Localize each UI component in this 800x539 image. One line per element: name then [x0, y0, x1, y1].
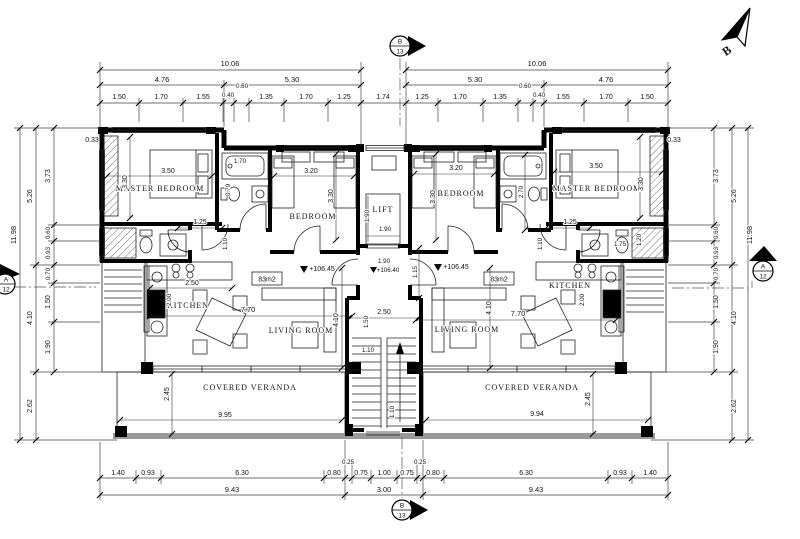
dim-top-l0: 1.50 — [112, 94, 126, 101]
room-veranda-left: COVERED VERANDA — [203, 383, 297, 392]
room-living-right: LIVING ROOM — [435, 325, 500, 334]
dim-top-r0: 1.25 — [415, 94, 429, 101]
dim-left-d5: 1.90 — [45, 340, 52, 354]
section-bottom-number: 13 — [398, 513, 406, 520]
labels-left-apartment: 0.33 MASTER BEDROOM 3.50 3.30 1.25 BEDRO… — [85, 137, 340, 419]
floor-plan-drawing: B 13 B 13 A 12 A 12 B 10.06 10.06 — [0, 0, 800, 539]
dim-bot-8: 0.25 — [414, 459, 427, 466]
dim-bot-0: 1.40 — [111, 470, 125, 477]
dim-top-sub-2: 5.30 — [468, 75, 483, 84]
veranda-right — [423, 372, 651, 436]
dim-tub-left: 1.70 — [234, 158, 247, 165]
section-marker-left: A 12 — [0, 264, 20, 294]
side-terrace-left — [102, 262, 145, 372]
dim-top-sub-3: 4.76 — [599, 75, 614, 84]
dim-top-l7: 1.25 — [337, 94, 351, 101]
dim-master-left-door: 1.25 — [193, 219, 207, 226]
dim-top-l1: 1.70 — [154, 94, 168, 101]
dim-top-r7: 1.50 — [640, 94, 654, 101]
dim-top-total-right: 10.06 — [528, 59, 547, 68]
dim-right-d1: 0.60 — [713, 226, 720, 239]
dim-top-total-left: 10.06 — [221, 59, 240, 68]
dim-top-l2: 1.55 — [196, 94, 210, 101]
dim-bedroom-left-d: 3.30 — [328, 189, 335, 203]
dim-living-right-w: 7.70 — [511, 309, 526, 318]
level-left: +106.45 — [309, 266, 335, 273]
dim-bot-5: 0.75 — [354, 470, 368, 477]
dim-left-mid-1: 4.10 — [27, 311, 34, 325]
room-living-left: LIVING ROOM — [269, 326, 334, 335]
section-bottom-letter: B — [400, 503, 404, 510]
dim-bot-4: 0.25 — [342, 459, 355, 466]
dim-left-d1: 0.60 — [45, 226, 52, 239]
dim-ensuite-right-w: 1.75 — [614, 241, 627, 248]
veranda-left — [117, 372, 345, 436]
dim-bot-total-1: 3.00 — [377, 485, 392, 494]
dim-left-d0: 3.73 — [45, 169, 52, 183]
dim-wc-left: 0.70 — [225, 183, 232, 196]
dim-bot-total-2: 9.43 — [529, 485, 544, 494]
dim-veranda-right-d: 2.45 — [585, 392, 592, 406]
dim-master-left-d: 3.30 — [122, 175, 129, 189]
dim-kitchen-left-d: 2.00 — [166, 293, 173, 306]
dim-top-r1: 1.70 — [453, 94, 467, 101]
section-top-letter: B — [398, 39, 402, 46]
lift-shaft — [366, 156, 400, 248]
dim-right-d2: 0.93 — [713, 246, 720, 259]
dim-top-r2: 1.35 — [493, 94, 507, 101]
dim-right-d5: 1.90 — [713, 340, 720, 354]
dim-living-right-d: 4.10 — [486, 301, 493, 315]
dim-veranda-left-w: 9.95 — [218, 412, 232, 419]
section-left-letter: A — [4, 277, 9, 284]
dim-top-r6: 1.70 — [599, 94, 613, 101]
dim-kitchen-left-w: 2.50 — [185, 280, 199, 287]
dim-master-right-door: 1.25 — [563, 219, 577, 226]
dim-bedroom-left-w: 3.20 — [304, 168, 318, 175]
dim-bot-2: 6.30 — [235, 470, 249, 477]
dim-stair-w: 2.50 — [377, 309, 391, 316]
dim-bot-11: 0.93 — [613, 470, 627, 477]
section-right-number: 12 — [759, 274, 767, 281]
side-terrace-right — [623, 262, 666, 372]
dim-hall-left: 1.10 — [222, 237, 229, 250]
veranda-edge-band — [113, 433, 655, 439]
dim-living-left-d: 4.10 — [333, 313, 340, 327]
dim-hall-right: 1.10 — [537, 237, 544, 250]
dim-top-center: 1.74 — [376, 94, 390, 101]
dim-lift-d: 1.90 — [364, 209, 371, 222]
room-bedroom-left: BEDROOM — [289, 212, 336, 221]
dim-corner-right: 0.33 — [667, 137, 681, 144]
dim-top-l5: 1.35 — [259, 94, 273, 101]
dim-top-r5: 1.55 — [556, 94, 570, 101]
section-right-letter: A — [761, 264, 766, 271]
room-veranda-right: COVERED VERANDA — [485, 383, 579, 392]
dim-ensuite-right-d: 1.20 — [636, 233, 643, 246]
dim-right-d3: 0.70 — [713, 267, 720, 280]
dim-top-r4: 0.40 — [533, 92, 546, 99]
dim-left-d3: 0.70 — [45, 267, 52, 280]
dim-left-mid-2: 2.62 — [27, 399, 34, 413]
dim-veranda-right-w: 9.94 — [530, 411, 544, 418]
furniture-left — [104, 136, 356, 354]
room-lift: LIFT — [373, 205, 394, 214]
dim-kitchen-right-d: 2.00 — [579, 293, 586, 306]
section-marker-bottom: B 13 — [392, 500, 428, 520]
section-marker-right: A 12 — [749, 246, 777, 281]
dim-stair-d3: 1.10 — [389, 405, 396, 418]
dim-right-mid-0: 5.26 — [731, 189, 738, 203]
dim-landing-w: 1.90 — [378, 258, 391, 265]
dims-left-side: 11.98 5.26 4.10 2.62 3.73 0.60 0.93 0.70… — [9, 169, 52, 413]
dim-master-right-w: 3.50 — [589, 163, 603, 170]
dim-top-l4: 0.60 — [236, 83, 249, 90]
area-right: 83m2 — [490, 277, 508, 284]
dim-left-d2: 0.93 — [45, 246, 52, 259]
section-marker-top: B 13 — [390, 36, 426, 56]
dim-top-l3: 0.40 — [222, 92, 235, 99]
dim-master-left-w: 3.50 — [161, 168, 175, 175]
level-landing: +106.40 — [377, 267, 400, 274]
dim-left-mid-0: 5.26 — [27, 189, 34, 203]
room-kitchen-right: KITCHEN — [549, 281, 591, 290]
area-left: 83m2 — [258, 277, 276, 284]
dim-right-d0: 3.73 — [713, 169, 720, 183]
dim-right-total: 11.98 — [745, 226, 754, 244]
dim-lift-w: 1.90 — [379, 226, 392, 233]
dim-landing-d: 1.15 — [412, 265, 419, 278]
dim-bedroom-right-d: 3.30 — [430, 190, 437, 204]
section-top-number: 13 — [396, 49, 404, 56]
room-kitchen-left: KITCHEN — [167, 301, 209, 310]
labels-right-apartment: 0.33 BEDROOM 3.20 3.30 2.70 1.10 MASTER … — [430, 137, 681, 418]
floor-plan-sheet: B 13 B 13 A 12 A 12 B 10.06 10.06 — [0, 0, 800, 539]
dim-bot-12: 1.40 — [643, 470, 657, 477]
dim-living-left-w: 7.70 — [241, 305, 256, 314]
dim-stair-d2: 1.10 — [362, 347, 375, 354]
dim-corner-left: 0.33 — [85, 137, 99, 144]
level-right: +106.45 — [443, 264, 469, 271]
north-arrow: B — [719, 8, 750, 59]
dim-bot-6: 1.00 — [377, 470, 391, 477]
dims-bottom: 1.40 0.93 6.30 0.80 0.25 0.75 1.00 0.75 … — [111, 459, 657, 494]
dim-veranda-left-d: 2.45 — [164, 387, 171, 401]
dim-top-sub-1: 5.30 — [285, 75, 300, 84]
dim-bot-9: 0.80 — [426, 470, 440, 477]
dim-bot-1: 0.93 — [141, 470, 155, 477]
dim-bot-total-0: 9.43 — [225, 485, 240, 494]
dim-bath-right-d: 2.70 — [518, 185, 525, 198]
dim-left-d4: 1.50 — [45, 295, 52, 309]
dim-top-sub-0: 4.76 — [155, 75, 170, 84]
section-left-number: 12 — [2, 287, 10, 294]
dims-top: 10.06 10.06 4.76 5.30 5.30 4.76 1.50 1.7… — [112, 59, 654, 101]
dim-bot-3: 0.80 — [327, 470, 341, 477]
dim-bedroom-right-w: 3.20 — [449, 165, 463, 172]
dim-right-d4: 1.50 — [713, 295, 720, 309]
dim-bot-10: 6.30 — [519, 470, 533, 477]
dim-top-r3: 0.60 — [519, 83, 532, 90]
sliding-glass-doors — [153, 366, 615, 372]
room-bedroom-right: BEDROOM — [437, 189, 484, 198]
dim-master-right-d: 3.30 — [638, 177, 645, 191]
room-master-right: MASTER BEDROOM — [553, 184, 641, 193]
dim-right-mid-1: 4.10 — [731, 311, 738, 325]
room-master-left: MASTER BEDROOM — [116, 184, 204, 193]
dim-right-mid-2: 2.62 — [731, 399, 738, 413]
dim-top-l6: 1.70 — [299, 94, 313, 101]
dim-left-total: 11.98 — [9, 226, 18, 244]
dim-bot-7: 0.75 — [400, 470, 414, 477]
dim-stair-d1: 1.50 — [363, 315, 370, 328]
north-letter: B — [719, 43, 734, 59]
